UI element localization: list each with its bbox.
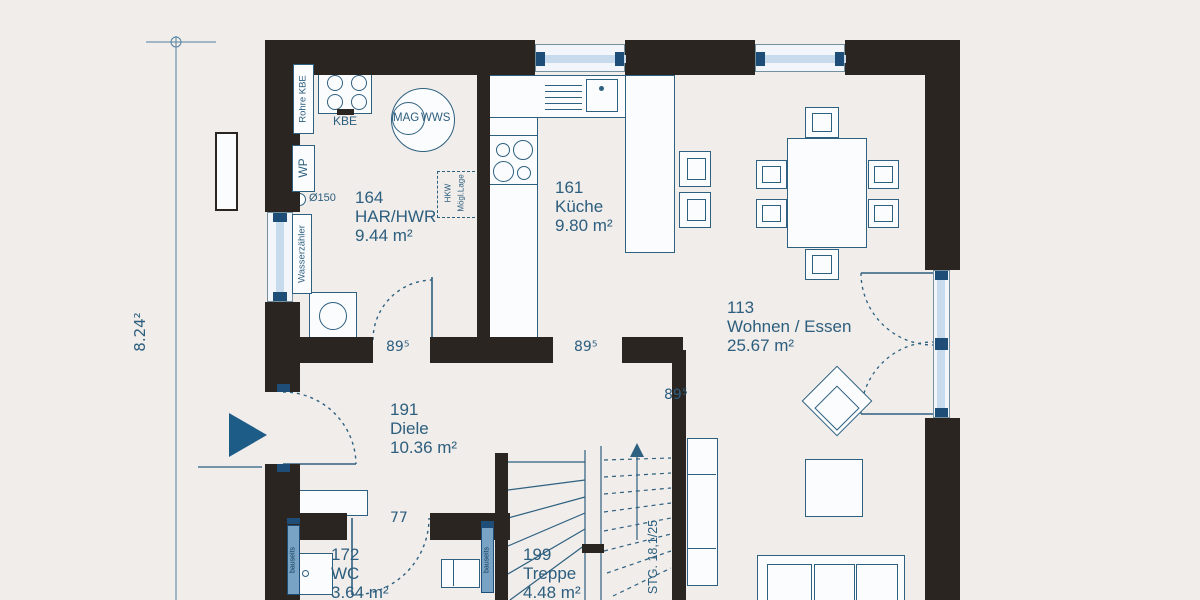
- terrace-door-glazing: [933, 270, 950, 418]
- window-glass: [536, 55, 626, 63]
- window-har: [267, 212, 293, 302]
- terrace-double-door: [861, 273, 933, 414]
- room-number: 191: [390, 400, 457, 419]
- radiator-cap: [481, 521, 494, 527]
- room-number: 113: [727, 298, 851, 317]
- wc-washbasin: [441, 559, 480, 588]
- floor-plan: Rohre KBE KBE MAG WWS WP Ø150 HKW Mögl.L…: [0, 0, 1200, 600]
- room-name: Wohnen / Essen: [727, 317, 851, 336]
- window-kitchen: [535, 44, 625, 72]
- armchair: [802, 366, 873, 437]
- room-number: 172: [331, 545, 389, 564]
- window-glass: [276, 213, 284, 301]
- drainboard-line: [545, 109, 582, 110]
- room-label-har: 164 HAR/HWR 9.44 m²: [355, 188, 436, 246]
- room-area: 4.48 m²: [523, 583, 581, 600]
- room-number: 199: [523, 545, 581, 564]
- wall-diele-har-left: [300, 337, 373, 363]
- wall-right-lower: [925, 418, 960, 600]
- room-label-kueche: 161 Küche 9.80 m²: [555, 178, 613, 236]
- wall-right-upper: [925, 40, 960, 270]
- room-area: 9.44 m²: [355, 226, 436, 245]
- shelf-cabinet: [687, 438, 718, 586]
- faucet-icon: [599, 86, 604, 91]
- wall-wc-top-right: [430, 513, 510, 540]
- window-cap: [536, 52, 545, 66]
- wws-label: WWS: [421, 112, 450, 125]
- wp-label: WP: [296, 158, 310, 177]
- room-label-treppe: 199 Treppe 4.48 m²: [523, 545, 581, 600]
- exterior-pillar: [215, 132, 238, 211]
- dining-chair: [805, 107, 839, 138]
- dining-chair: [756, 160, 787, 189]
- window-dining: [755, 44, 845, 72]
- wall-wc-top-left: [265, 513, 347, 540]
- coffee-table: [805, 459, 863, 517]
- pipe-150-label: Ø150: [309, 192, 336, 204]
- wall-diele-kueche: [430, 337, 553, 363]
- dining-chair: [805, 249, 839, 280]
- room-number: 161: [555, 178, 613, 197]
- dining-chair: [868, 160, 899, 189]
- room-number: 164: [355, 188, 436, 207]
- room-area: 25.67 m²: [727, 336, 851, 355]
- hkw-label-1: HKW: [444, 184, 453, 203]
- room-area: 3.64 m²: [331, 583, 389, 600]
- sofa: [757, 555, 905, 600]
- drainboard-line: [545, 91, 582, 92]
- radiator-cap: [287, 518, 300, 524]
- window-cap: [935, 338, 948, 350]
- door-width-wohnen: 89⁵: [664, 387, 687, 403]
- entrance-door: [283, 392, 356, 464]
- wall-left-middle: [265, 302, 300, 392]
- window-cap: [756, 52, 765, 66]
- room-name: Diele: [390, 419, 457, 438]
- window-cap: [615, 52, 624, 66]
- door-width-kueche: 89⁵: [574, 339, 597, 355]
- room-label-diele: 191 Diele 10.36 m²: [390, 400, 457, 458]
- stairs-newel-wall: [582, 544, 604, 553]
- entrance-arrow-icon: [229, 413, 267, 457]
- wall-har-kueche: [477, 75, 490, 340]
- wc-radiator-label: bauseits: [290, 547, 297, 573]
- wc-shower: [297, 553, 333, 595]
- kitchen-island: [625, 75, 675, 253]
- window-cap: [935, 271, 948, 280]
- dining-chair: [756, 199, 787, 228]
- window-glass: [756, 55, 846, 63]
- wasserzaehler-label: Wasserzähler: [297, 225, 308, 283]
- room-label-wc: 172 WC 3.64 m²: [331, 545, 389, 600]
- room-name: WC: [331, 564, 389, 583]
- room-area: 10.36 m²: [390, 438, 457, 457]
- cooktop: [489, 135, 538, 185]
- bar-stool: [679, 151, 711, 187]
- entrance-jamb-block: [277, 384, 290, 392]
- kbe-label: KBE: [318, 115, 372, 129]
- room-area: 9.80 m²: [555, 216, 613, 235]
- window-cap: [835, 52, 844, 66]
- mag-label: MAG: [393, 112, 419, 125]
- wall-top-middle: [625, 40, 755, 75]
- room-name: Küche: [555, 197, 613, 216]
- dining-chair: [868, 199, 899, 228]
- har-door: [373, 277, 432, 340]
- stairs-direction-arrow: [630, 443, 644, 540]
- dining-table: [787, 138, 867, 248]
- kitchen-sink: [586, 79, 618, 112]
- room-label-wohnen: 113 Wohnen / Essen 25.67 m²: [727, 298, 851, 356]
- drainboard-line: [545, 85, 582, 86]
- door-width-har: 89⁵: [386, 339, 409, 355]
- window-cap: [935, 408, 948, 417]
- hkw-label-2: Mögl.Lage: [457, 174, 466, 211]
- stairs-spec-label: STG. 18,1/25: [646, 520, 660, 594]
- window-cap: [273, 292, 287, 301]
- dimension-line-left: [146, 36, 216, 600]
- washing-machine: [309, 292, 357, 340]
- drainboard-line: [545, 103, 582, 104]
- rohre-kbe-label: Rohre KBE: [298, 75, 309, 123]
- stair-radiator-label: bauseits: [484, 547, 491, 573]
- door-width-wc: 77: [390, 510, 408, 526]
- dimension-label-left: 8.24²: [131, 312, 149, 351]
- entrance-hinge-block: [277, 464, 290, 472]
- room-name: HAR/HWR: [355, 207, 436, 226]
- window-cap: [273, 213, 287, 222]
- stairs-upper-flight: [604, 458, 671, 596]
- room-name: Treppe: [523, 564, 581, 583]
- bar-stool: [679, 192, 711, 228]
- drainboard-line: [545, 97, 582, 98]
